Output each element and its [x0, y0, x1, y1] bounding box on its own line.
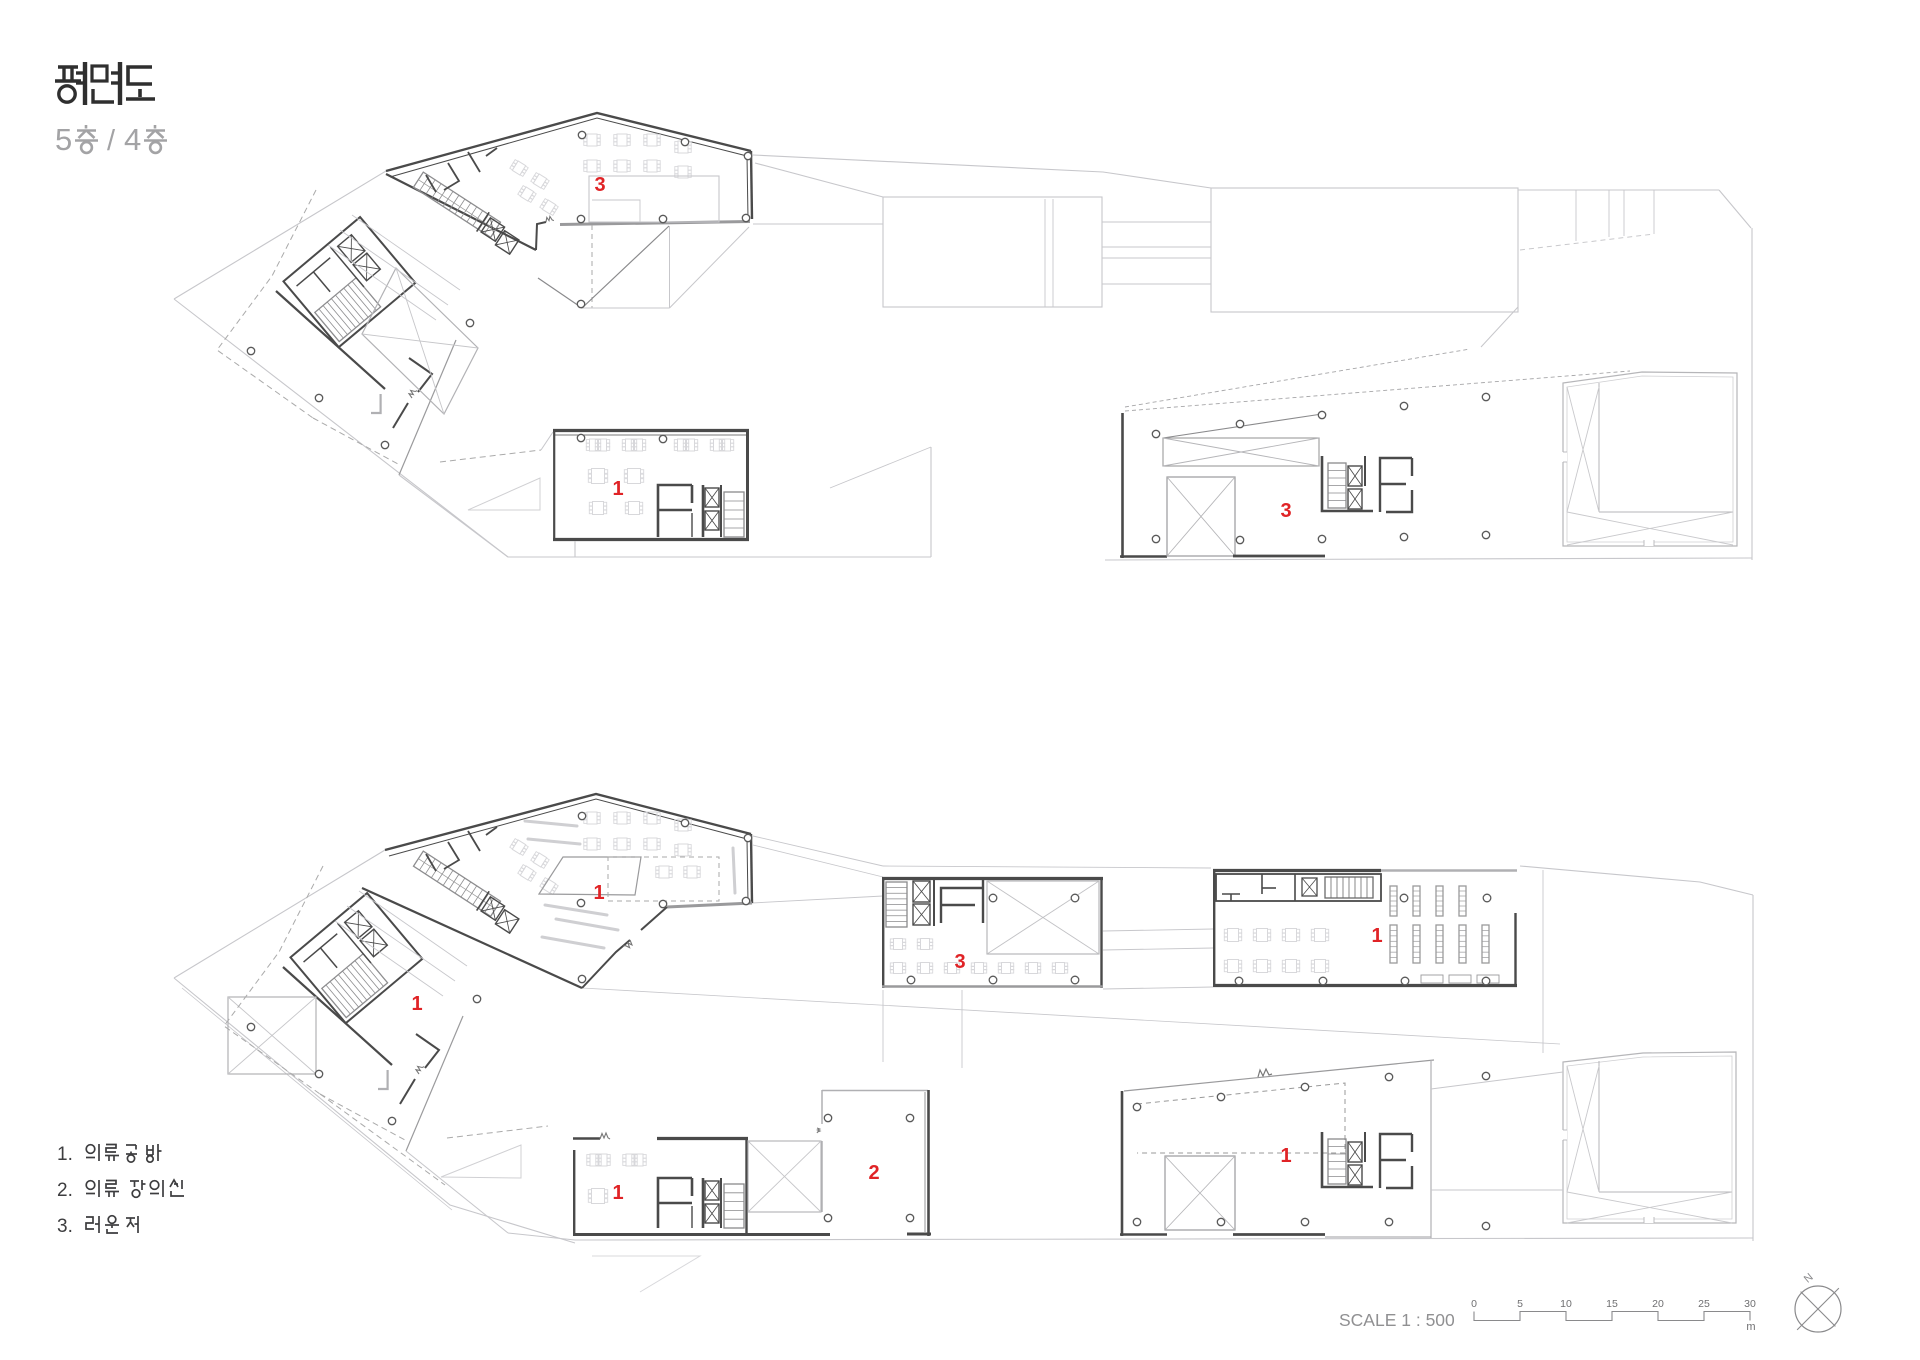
svg-text:1: 1	[593, 882, 604, 904]
svg-text:5: 5	[55, 122, 72, 157]
svg-text:5: 5	[1517, 1298, 1523, 1310]
svg-text:15: 15	[1606, 1298, 1618, 1310]
svg-text:m: m	[1746, 1321, 1755, 1333]
svg-text:25: 25	[1698, 1298, 1710, 1310]
svg-text:20: 20	[1652, 1298, 1664, 1310]
svg-text:3: 3	[954, 951, 965, 973]
svg-text:/: /	[107, 125, 116, 157]
svg-text:3: 3	[594, 174, 605, 196]
svg-text:2.: 2.	[57, 1180, 73, 1201]
svg-text:3: 3	[1280, 500, 1291, 522]
svg-text:1: 1	[612, 478, 623, 500]
svg-text:30: 30	[1744, 1298, 1756, 1310]
svg-text:0: 0	[1471, 1298, 1477, 1310]
svg-text:3.: 3.	[57, 1216, 73, 1237]
svg-text:1: 1	[1280, 1145, 1291, 1167]
svg-text:4: 4	[124, 122, 141, 157]
svg-text:SCALE 1 : 500: SCALE 1 : 500	[1339, 1310, 1455, 1330]
svg-text:1.: 1.	[57, 1144, 73, 1165]
svg-text:1: 1	[612, 1182, 623, 1204]
svg-text:1: 1	[1371, 925, 1382, 947]
svg-text:10: 10	[1560, 1298, 1572, 1310]
svg-text:1: 1	[411, 993, 422, 1015]
svg-text:2: 2	[868, 1162, 879, 1184]
